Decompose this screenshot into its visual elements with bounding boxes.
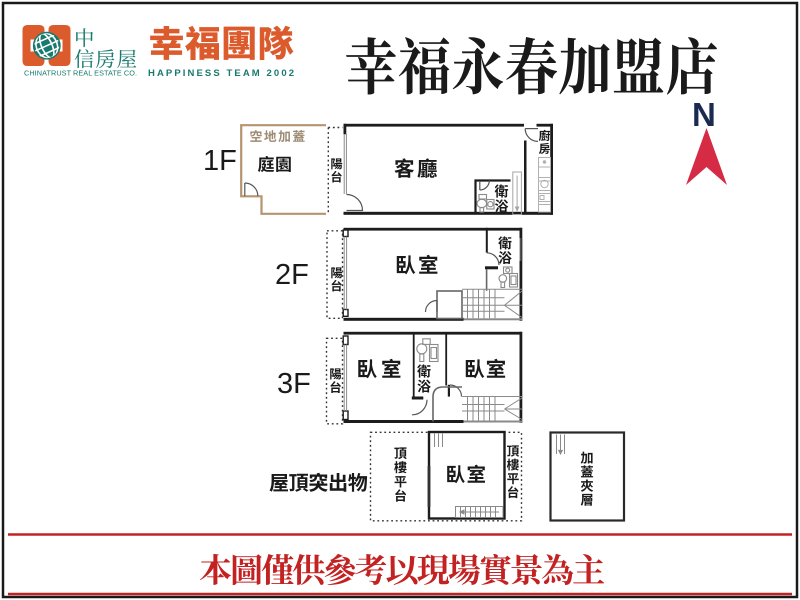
svg-text:3F: 3F: [277, 368, 311, 400]
svg-text:N: N: [692, 96, 716, 133]
svg-text:1F: 1F: [203, 145, 237, 177]
svg-text:2F: 2F: [275, 259, 309, 291]
svg-text:CHINATRUST REAL ESTATE CO.: CHINATRUST REAL ESTATE CO.: [24, 69, 137, 78]
